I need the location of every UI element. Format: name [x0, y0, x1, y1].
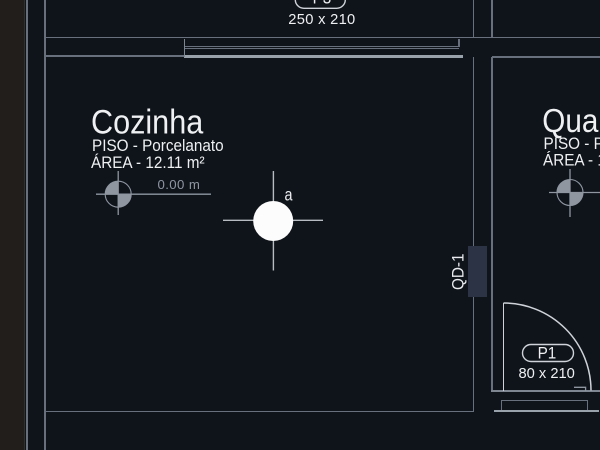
- svg-text:80 x 210: 80 x 210: [519, 366, 575, 382]
- svg-text:P1: P1: [538, 344, 557, 363]
- svg-text:ÁREA - 12.11 m²: ÁREA - 12.11 m²: [543, 150, 600, 170]
- svg-text:a: a: [285, 185, 294, 205]
- svg-text:P3: P3: [313, 0, 332, 8]
- svg-text:250 x 210: 250 x 210: [288, 12, 355, 28]
- svg-text:0.00 m: 0.00 m: [158, 177, 201, 192]
- svg-text:ÁREA - 12.11 m²: ÁREA - 12.11 m²: [91, 152, 205, 172]
- svg-text:QD-1: QD-1: [449, 253, 468, 290]
- svg-text:Cozinha: Cozinha: [91, 103, 203, 141]
